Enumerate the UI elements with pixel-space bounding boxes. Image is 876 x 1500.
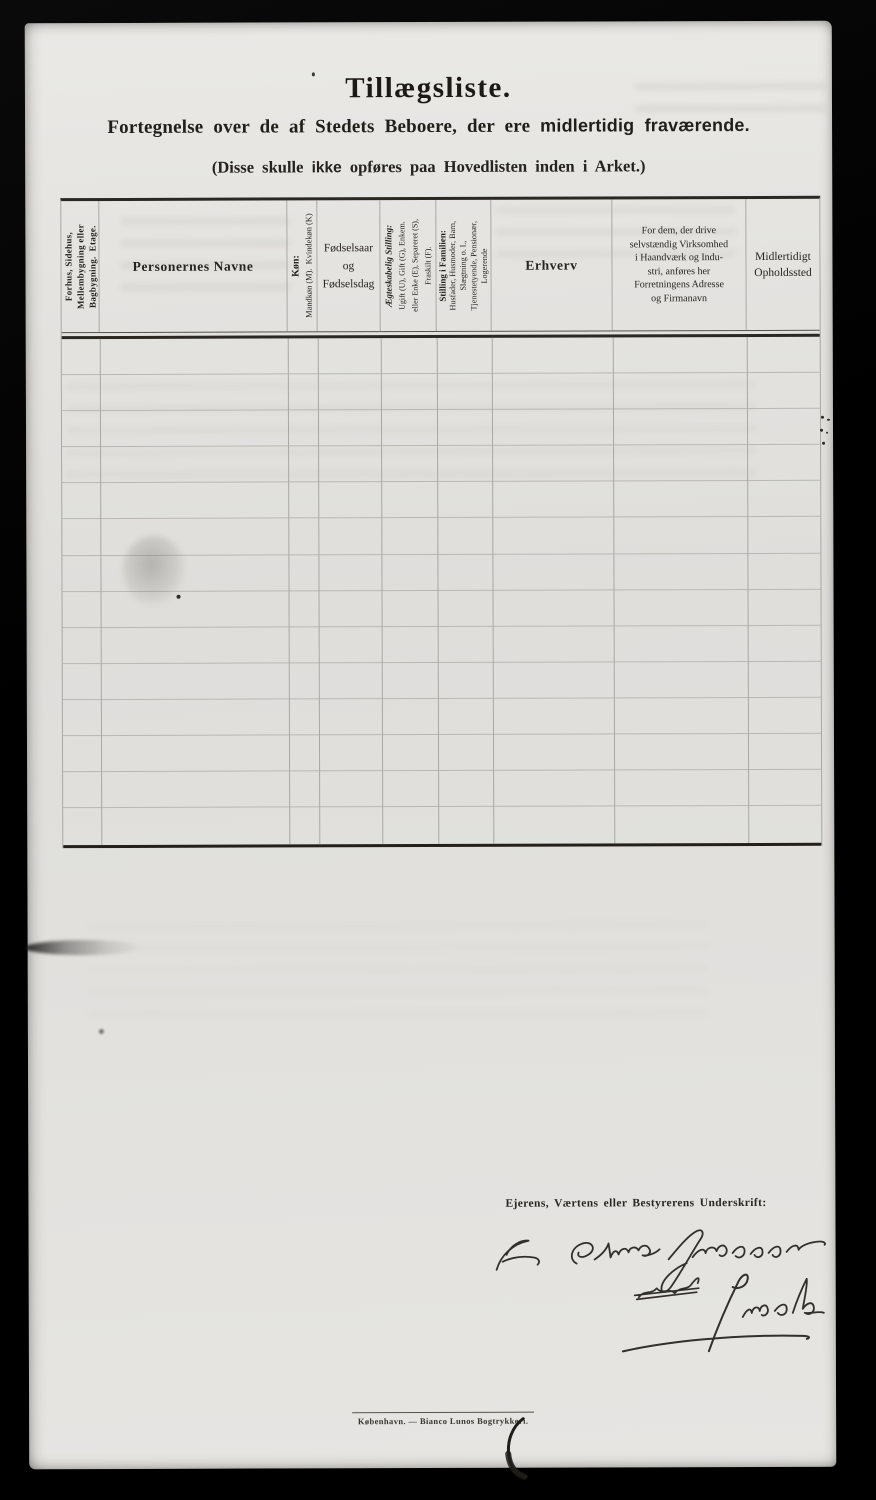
note-emphasis: ikke bbox=[312, 159, 342, 176]
column-header-building: Forhus, Sidehus, Mellembygning eller Bag… bbox=[61, 201, 99, 332]
ink-speck bbox=[826, 432, 828, 434]
note-text-suffix: opføres paa Hovedlisten inden i Arket.) bbox=[342, 156, 646, 176]
column-header-marital-status: Ægteskabelig Stilling: Ugift (U), Gift (… bbox=[380, 200, 436, 331]
census-table: Forhus, Sidehus, Mellembygning eller Bag… bbox=[60, 196, 822, 848]
handwriting-struck-word bbox=[635, 1278, 699, 1299]
note-text: (Disse skulle bbox=[212, 157, 312, 176]
handwritten-signature bbox=[490, 1221, 835, 1377]
bleedthrough-smudge bbox=[88, 921, 708, 1033]
table-row bbox=[62, 409, 820, 447]
ink-speck bbox=[99, 1029, 104, 1034]
column-header-whereabouts: Midlertidigt Opholdssted bbox=[746, 199, 819, 330]
table-row bbox=[63, 806, 821, 844]
ink-streak bbox=[25, 940, 143, 955]
ink-mark bbox=[493, 1416, 538, 1486]
table-row bbox=[63, 770, 821, 808]
table-row bbox=[63, 626, 821, 664]
column-header-birth: Fødselsaar og Fødselsdag bbox=[317, 200, 380, 331]
table-row bbox=[63, 662, 821, 700]
page-subtitle: Fortegnelse over de af Stedets Beboere, … bbox=[25, 115, 832, 140]
ink-speck bbox=[821, 416, 824, 419]
handwriting-signature-name-2 bbox=[743, 1279, 824, 1317]
table-header: Forhus, Sidehus, Mellembygning eller Bag… bbox=[61, 199, 819, 333]
column-header-occupation: Erhverv bbox=[491, 199, 612, 330]
ink-speck bbox=[822, 442, 825, 445]
ink-speck bbox=[177, 595, 181, 599]
handwriting-johansen bbox=[661, 1230, 825, 1292]
table-row bbox=[62, 445, 820, 483]
table-row bbox=[63, 734, 821, 772]
handwriting-for bbox=[497, 1241, 540, 1270]
page-title: Tillægsliste. bbox=[25, 71, 832, 107]
table-row bbox=[62, 481, 820, 519]
column-header-family-position: Stilling i Familien: Husfader, Husmoder,… bbox=[436, 200, 491, 331]
column-header-business-address: For dem, der drive selvstændig Virksomhe… bbox=[612, 199, 746, 330]
subtitle-text: Fortegnelse over de af Stedets Beboere, … bbox=[107, 116, 540, 138]
handwriting-signature-name bbox=[623, 1274, 809, 1351]
subtitle-emphasis: midlertidig fraværende. bbox=[540, 115, 750, 136]
ink-speck bbox=[820, 429, 823, 432]
page-note: (Disse skulle ikke opføres paa Hovedlist… bbox=[25, 156, 832, 179]
table-row bbox=[62, 337, 820, 375]
ink-speck bbox=[827, 419, 830, 421]
table-row bbox=[62, 373, 820, 411]
document-page: Tillægsliste. Fortegnelse over de af Ste… bbox=[25, 21, 837, 1470]
signature-caption: Ejerens, Værtens eller Bestyrerens Under… bbox=[505, 1197, 766, 1210]
column-header-names: Personernes Navne bbox=[99, 200, 287, 332]
column-header-sex: Køn: Mandkøn (M). Kvindekøn (K) bbox=[287, 200, 317, 331]
table-row bbox=[63, 698, 821, 736]
handwriting-elias bbox=[572, 1243, 660, 1264]
